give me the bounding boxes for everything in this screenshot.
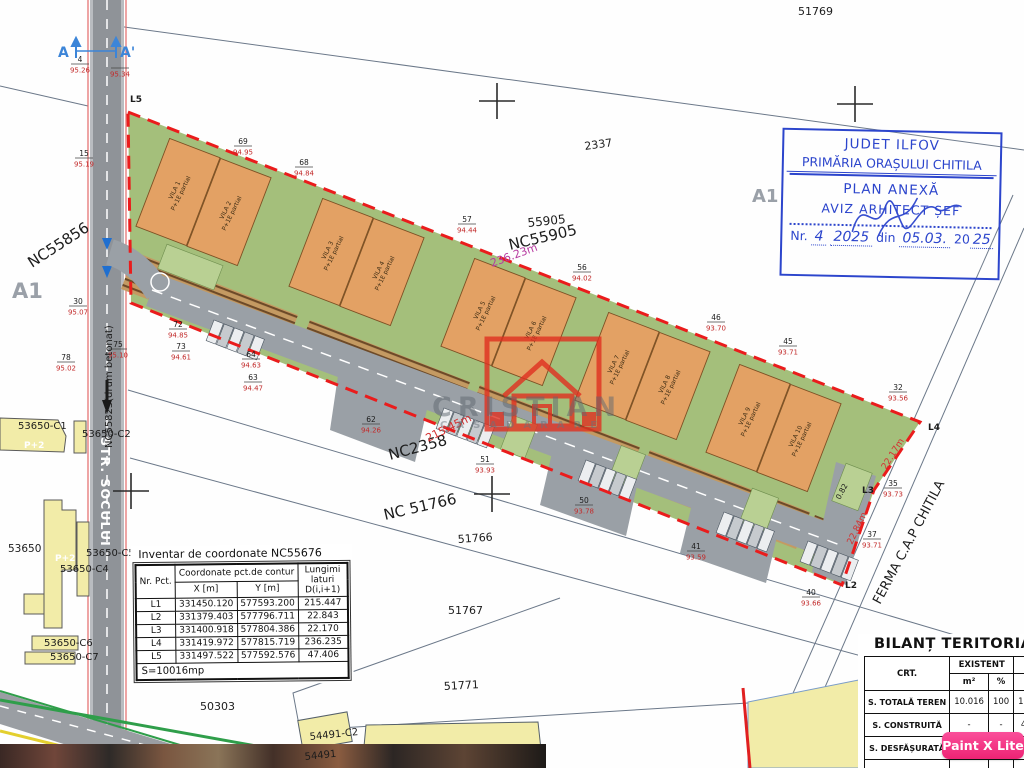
svg-text:93.66: 93.66 bbox=[801, 600, 822, 608]
map-label: 53650-C7 bbox=[50, 652, 99, 663]
map-label: 2337 bbox=[584, 136, 614, 153]
col-header-coord: Coordonate pct.de contur bbox=[175, 563, 298, 581]
map-label: 53650-C6 bbox=[44, 638, 93, 649]
survey-point: 3293.56 bbox=[888, 383, 909, 403]
bilant-row: S. TOTALĂ TEREN10.01610010.016100 bbox=[865, 691, 1024, 714]
svg-text:94.44: 94.44 bbox=[457, 227, 478, 235]
map-label: A1 bbox=[752, 186, 778, 207]
svg-text:93.78: 93.78 bbox=[574, 508, 594, 516]
scanned-site-plan: VILA 1P+1E partialVILA 2P+1E partialVILA… bbox=[0, 0, 1024, 768]
svg-text:78: 78 bbox=[61, 353, 71, 362]
survey-point: 95.34 bbox=[110, 68, 131, 79]
neighbor-buildings-left bbox=[0, 418, 89, 664]
survey-point: 6994.95 bbox=[233, 137, 253, 157]
svg-text:93.70: 93.70 bbox=[706, 325, 726, 333]
map-label: 53650-C4 bbox=[60, 564, 109, 575]
col-header-y: Y [m] bbox=[237, 580, 299, 597]
svg-text:41: 41 bbox=[691, 542, 701, 551]
map-label: 50303 bbox=[200, 700, 235, 713]
svg-text:57: 57 bbox=[462, 215, 472, 224]
svg-text:35: 35 bbox=[888, 479, 898, 488]
survey-point: 3095.07 bbox=[68, 297, 88, 317]
coordinate-table-title: Inventar de coordonate NC55676 bbox=[138, 546, 348, 561]
map-label: 53650-C1 bbox=[18, 421, 67, 432]
svg-text:15: 15 bbox=[79, 149, 89, 158]
bilant-row: P.O.T.--45 bbox=[865, 760, 1024, 768]
svg-text:95.26: 95.26 bbox=[70, 67, 91, 75]
approval-stamp: JUDET ILFOV PRIMĂRIA ORAȘULUI CHITILA PL… bbox=[779, 128, 1002, 281]
survey-point: 5794.44 bbox=[457, 215, 478, 235]
svg-text:93.59: 93.59 bbox=[686, 554, 706, 562]
map-label: 53650 bbox=[8, 543, 41, 555]
svg-text:68: 68 bbox=[299, 158, 309, 167]
survey-point: 6894.84 bbox=[294, 158, 315, 178]
svg-text:51: 51 bbox=[480, 455, 490, 464]
svg-text:73: 73 bbox=[176, 342, 186, 351]
map-label: 51769 bbox=[798, 5, 833, 18]
survey-point: 3793.71 bbox=[862, 530, 882, 550]
col-header-crt: CRT. bbox=[865, 657, 950, 691]
svg-text:30: 30 bbox=[73, 297, 83, 306]
svg-text:93.71: 93.71 bbox=[862, 542, 882, 550]
map-label: 53650-C5 bbox=[86, 548, 135, 559]
paint-badge-label: Paint X Lite bbox=[942, 738, 1023, 753]
svg-text:93.73: 93.73 bbox=[883, 491, 903, 499]
svg-text:37: 37 bbox=[867, 530, 877, 539]
svg-text:93.93: 93.93 bbox=[475, 467, 495, 475]
photo-strip bbox=[0, 744, 546, 768]
col-header-propus: PROPUS bbox=[1014, 657, 1024, 674]
svg-text:94.85: 94.85 bbox=[168, 332, 188, 340]
map-label: A' bbox=[120, 45, 135, 61]
svg-text:62: 62 bbox=[366, 415, 376, 424]
col-header-nr: Nr. Pct. bbox=[135, 565, 175, 599]
survey-point: 4693.70 bbox=[706, 313, 726, 333]
map-label: 51771 bbox=[443, 678, 479, 693]
stamp-county: JUDET ILFOV bbox=[784, 135, 1000, 156]
svg-text:56: 56 bbox=[577, 263, 587, 272]
svg-text:93.71: 93.71 bbox=[778, 349, 798, 357]
svg-text:50: 50 bbox=[579, 496, 589, 505]
svg-text:72: 72 bbox=[173, 320, 183, 329]
svg-text:94.84: 94.84 bbox=[294, 170, 315, 178]
map-label: A bbox=[58, 45, 69, 61]
map-label: L4 bbox=[928, 423, 940, 433]
map-label: L5 bbox=[130, 95, 142, 105]
svg-text:40: 40 bbox=[806, 588, 816, 597]
svg-text:94.95: 94.95 bbox=[233, 149, 253, 157]
map-label: STR. SOCULUI bbox=[98, 437, 113, 547]
map-label: NC 51766 bbox=[382, 490, 458, 524]
map-label: NC55856 bbox=[24, 218, 92, 271]
svg-text:32: 32 bbox=[893, 383, 903, 392]
svg-text:95.07: 95.07 bbox=[68, 309, 88, 317]
map-label: L3 bbox=[862, 486, 874, 496]
coordinate-inventory-table: Inventar de coordonate NC55676 Nr. Pct. … bbox=[130, 544, 353, 685]
survey-point: 5694.02 bbox=[572, 263, 592, 283]
signature-icon bbox=[844, 179, 975, 244]
paint-x-lite-badge: Paint X Lite bbox=[942, 732, 1024, 759]
stamp-number-value: 4 bbox=[811, 228, 826, 245]
svg-text:69: 69 bbox=[238, 137, 248, 146]
svg-text:94.02: 94.02 bbox=[572, 275, 592, 283]
col-header-len: Lungimi laturi D(i,i+1) bbox=[298, 563, 348, 597]
svg-text:94.63: 94.63 bbox=[241, 362, 261, 370]
map-label: A1 bbox=[12, 279, 43, 303]
survey-point: 7394.61 bbox=[171, 342, 191, 362]
map-label: NC55823(drum betonat) bbox=[104, 325, 115, 448]
map-label: 51767 bbox=[448, 604, 483, 617]
svg-text:64: 64 bbox=[246, 350, 256, 359]
svg-text:93.56: 93.56 bbox=[888, 395, 909, 403]
col-header-x: X [m] bbox=[175, 581, 237, 598]
svg-text:45: 45 bbox=[783, 337, 793, 346]
bilant-title: BILANȚ TERITORIAL bbox=[874, 636, 1024, 652]
svg-text:94.61: 94.61 bbox=[171, 354, 191, 362]
svg-text:95.19: 95.19 bbox=[74, 161, 94, 169]
survey-point: 7895.02 bbox=[56, 353, 76, 373]
map-label: P+2 bbox=[55, 554, 75, 564]
surface-total: S=10016mp bbox=[137, 661, 349, 680]
survey-point: 4093.66 bbox=[801, 588, 822, 608]
svg-text:4: 4 bbox=[78, 55, 83, 64]
svg-text:95.02: 95.02 bbox=[56, 365, 76, 373]
map-label: 51766 bbox=[457, 531, 493, 546]
col-header-existent: EXISTENT bbox=[950, 657, 1014, 674]
svg-text:95.34: 95.34 bbox=[110, 71, 131, 79]
svg-text:94.47: 94.47 bbox=[243, 385, 263, 393]
map-label: P+2 bbox=[24, 441, 44, 451]
svg-text:94.26: 94.26 bbox=[361, 427, 382, 435]
survey-point: 4593.71 bbox=[778, 337, 798, 357]
map-label: L2 bbox=[845, 581, 857, 591]
svg-text:63: 63 bbox=[248, 373, 258, 382]
svg-text:46: 46 bbox=[711, 313, 721, 322]
survey-point: 6394.47 bbox=[243, 373, 263, 393]
survey-point: 5193.93 bbox=[475, 455, 495, 475]
